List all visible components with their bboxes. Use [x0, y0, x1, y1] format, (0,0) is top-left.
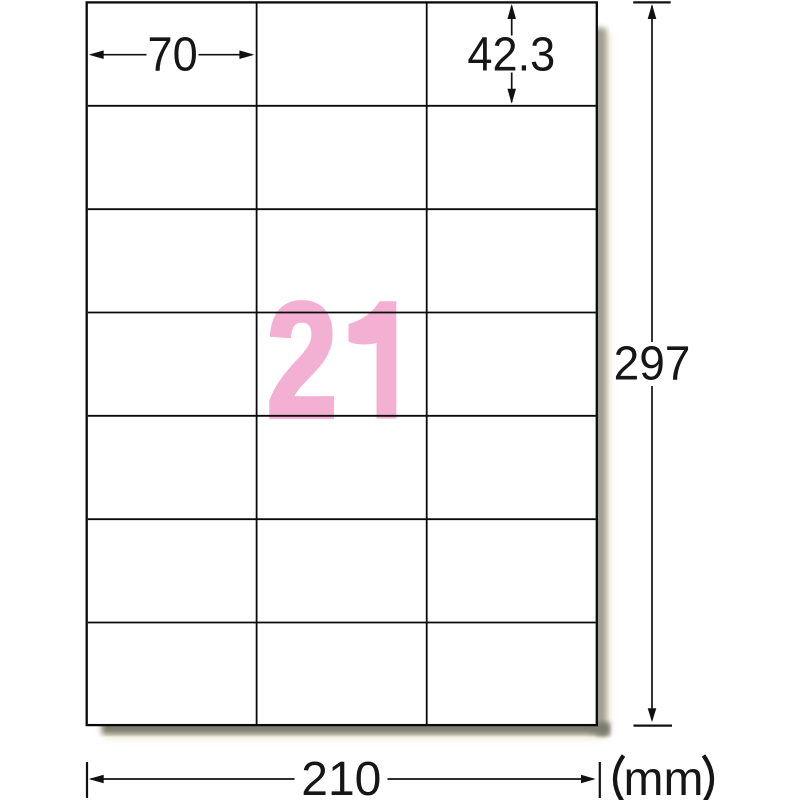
svg-text:70: 70	[148, 27, 198, 81]
svg-text:297: 297	[614, 335, 691, 389]
svg-text:42.3: 42.3	[467, 27, 555, 81]
svg-text:mm: mm	[624, 753, 704, 800]
svg-text:210: 210	[301, 753, 381, 800]
svg-text:2: 2	[267, 269, 338, 452]
